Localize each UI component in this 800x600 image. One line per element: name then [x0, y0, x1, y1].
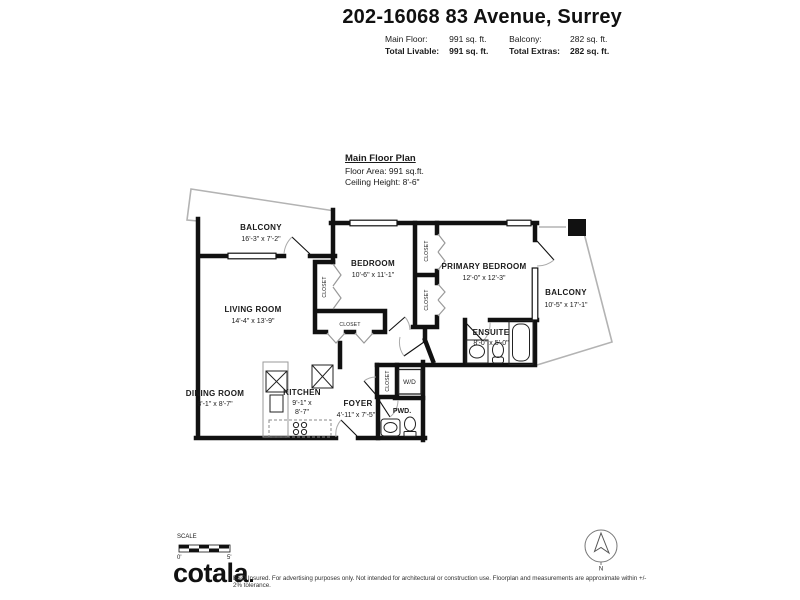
- room-label-wd: W/D: [403, 379, 416, 386]
- compass-n-label: N: [599, 567, 603, 573]
- pwd-toilet-bowl: [405, 417, 416, 431]
- room-dims-bedroom: 10'-6" x 11'-1": [352, 272, 395, 279]
- room-label-pwd: PWD.: [393, 408, 411, 415]
- room-label-balcony-right: BALCONY: [545, 288, 587, 297]
- room-dims-foyer: 4'-11" x 7'-5": [337, 412, 376, 419]
- disclaimer-text: E&O Insured. For advertising purposes on…: [233, 575, 653, 589]
- floorplan-drawing: BALCONY 16'-3" x 7'-2" LIVING ROOM 14'-4…: [0, 0, 800, 600]
- room-dims-balcony-right: 10'-5" x 17'-1": [544, 302, 588, 309]
- window: [532, 268, 538, 320]
- room-label-living: LIVING ROOM: [224, 305, 281, 314]
- closet-label: CLOSET: [424, 240, 430, 261]
- room-label-dining: DINING ROOM: [186, 389, 244, 398]
- balcony-railing-left: [187, 189, 335, 221]
- room-label-primary: PRIMARY BEDROOM: [442, 262, 527, 271]
- pwd-fixtures: [381, 417, 416, 437]
- closet-label: CLOSET: [424, 289, 430, 310]
- kitchen-appliance: [270, 395, 283, 412]
- pwd-sink: [384, 423, 397, 433]
- room-dims-primary: 12'-0" x 12'-3": [462, 275, 506, 282]
- window: [228, 253, 276, 259]
- room-dims-ensuite: 8'-0" x 5'-0": [473, 340, 509, 347]
- floorplan-page: 202-16068 83 Avenue, Surrey Main Floor: …: [0, 0, 800, 600]
- window: [507, 220, 531, 226]
- bathtub-inner: [513, 324, 530, 361]
- room-label-foyer: FOYER: [343, 399, 372, 408]
- room-label-bedroom: BEDROOM: [351, 259, 395, 268]
- room-dims-living: 14'-4" x 13'-9": [231, 318, 275, 325]
- room-label-ensuite: ENSUITE: [473, 328, 510, 337]
- closet-label: CLOSET: [322, 276, 328, 297]
- scale-title: SCALE: [177, 534, 197, 540]
- room-dims-balcony-left: 16'-3" x 7'-2": [241, 236, 281, 243]
- room-label-kitchen: KITCHEN: [283, 388, 321, 397]
- closet-label: CLOSET: [339, 322, 360, 328]
- closet-label: CLOSET: [385, 370, 391, 391]
- structural-column: [568, 219, 586, 236]
- room-label-balcony-left: BALCONY: [240, 223, 282, 232]
- kitchen-counter-lower: [269, 420, 331, 437]
- room-dims-dining: 8'-1" x 8'-7": [197, 401, 233, 408]
- room-dims-kitchen-2: 8'-7": [295, 409, 309, 416]
- room-dims-kitchen-1: 9'-1" x: [292, 400, 312, 407]
- window: [350, 220, 397, 226]
- north-arrow-icon: N: [585, 530, 617, 573]
- kitchen-stove-x: [312, 365, 333, 388]
- stove-burners: [293, 422, 306, 434]
